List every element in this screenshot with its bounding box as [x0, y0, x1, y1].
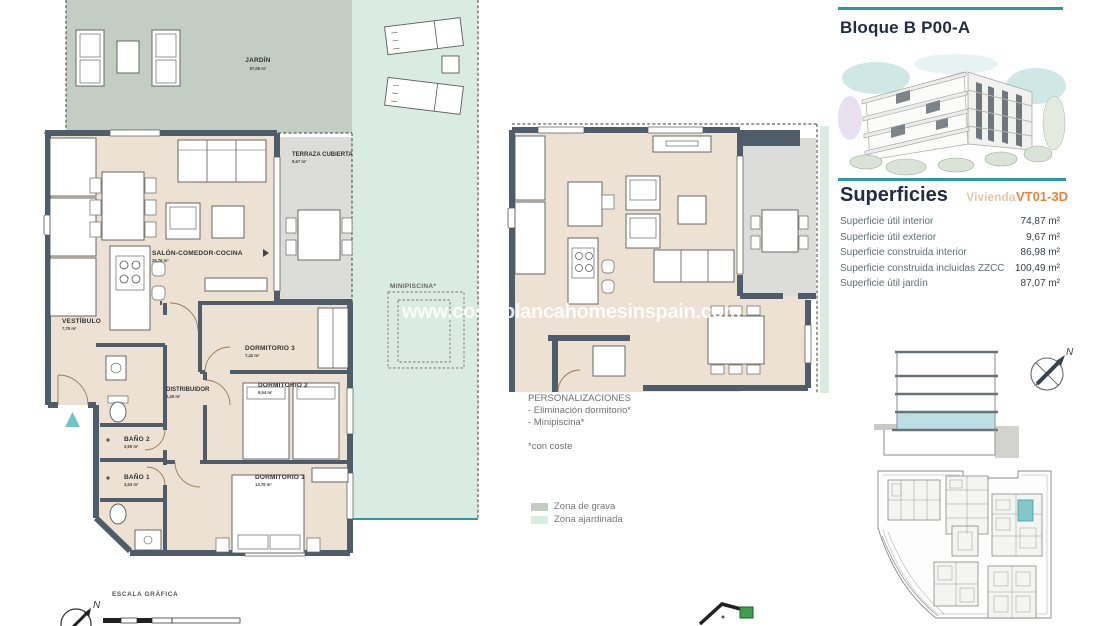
scale-bar — [95, 615, 250, 626]
watermark: www.costablancahomesinspain.com — [402, 301, 741, 324]
row-value: 9,67 m² — [1026, 232, 1060, 243]
row-value: 100,49 m² — [1015, 263, 1060, 274]
room-area-distribuidor: 2,49 m² — [166, 394, 181, 399]
top-rule — [838, 7, 1063, 10]
key-plan-icon — [690, 598, 770, 626]
highlighted-floor — [897, 413, 995, 430]
room-label-minipiscina: MINIPISCINA* — [390, 283, 436, 290]
room-label-vestibulo: VESTÍBULO — [62, 316, 101, 325]
room-label-distribuidor: DISTRIBUIDOR — [166, 387, 210, 393]
unit-code: VT01-3D — [1016, 189, 1068, 204]
kitchen-counters — [50, 138, 96, 316]
room-label-dormitorio3: DORMITORIO 3 — [245, 345, 295, 352]
gravel-swatch-icon — [531, 503, 548, 511]
compass-rose-icon: N — [1018, 342, 1080, 404]
row-value: 87,07 m² — [1021, 278, 1060, 289]
compass-n-label: N — [93, 600, 101, 611]
table-row: Superficie útil jardín 87,07 m² — [840, 276, 1060, 292]
row-label: Superficie útil interior — [840, 216, 933, 227]
table-row: Superficie útil exterior 9,67 m² — [840, 230, 1060, 246]
block-title: Bloque B P00-A — [840, 18, 970, 38]
site-plan — [868, 466, 1073, 626]
room-label-dormitorio2: DORMITORIO 2 — [258, 382, 308, 389]
building-section-diagram — [862, 338, 1027, 466]
room-area-bano1: 3,63 m² — [124, 482, 139, 487]
personalizaciones-item-2: - Minipiscina* — [528, 417, 631, 429]
sofa — [178, 140, 266, 182]
highlighted-unit — [1018, 500, 1033, 521]
zona-ajardinada-area — [352, 0, 478, 518]
room-area-salon: 26,76 m² — [152, 258, 169, 263]
table-row: Superficie construida incluidas ZZCC 100… — [840, 261, 1060, 277]
room-label-jardin: JARDÍN — [245, 55, 271, 64]
garden-swatch-icon — [531, 516, 548, 524]
room-area-dormitorio1: 13,78 m² — [255, 482, 272, 487]
building-render-sketch — [836, 48, 1068, 178]
compass-n-label: N — [1066, 347, 1074, 358]
row-label: Superficie útil jardín — [840, 278, 928, 289]
room-area-bano2: 3,50 m² — [124, 444, 139, 449]
personalizaciones-block: PERSONALIZACIONES - Eliminación dormitor… — [528, 393, 631, 453]
table-row: Superficie útil interior 74,87 m² — [840, 214, 1060, 230]
surfaces-subtitle: Vivienda — [966, 190, 1015, 204]
row-label: Superficie construida incluidas ZZCC — [840, 263, 1005, 274]
room-area-dormitorio2: 9,54 m² — [258, 390, 273, 395]
legend-label-ajardinada: Zona ajardinada — [554, 514, 623, 525]
row-label: Superficie útil exterior — [840, 232, 936, 243]
room-label-terraza: TERRAZA CUBIERTA — [292, 152, 353, 158]
entrance-marker — [65, 412, 80, 427]
row-value: 74,87 m² — [1021, 216, 1060, 227]
surfaces-title: Superficies — [840, 184, 948, 207]
mid-rule — [838, 178, 1066, 181]
room-label-bano2: BAÑO 2 — [124, 434, 150, 443]
room-area-jardin: 87,06 m² — [250, 66, 267, 71]
legend-row-grava: Zona de grava — [531, 501, 623, 512]
row-label: Superficie construida interior — [840, 247, 967, 258]
table-row: Superficie construida interior 86,98 m² — [840, 245, 1060, 261]
personalizaciones-note: *con coste — [528, 441, 631, 453]
room-label-dormitorio1: DORMITORIO 1 — [255, 474, 305, 481]
legend-row-ajardinada: Zona ajardinada — [531, 514, 623, 525]
room-area-dormitorio3: 7,42 m² — [245, 353, 260, 358]
scale-label: ESCALA GRÁFICA — [112, 591, 178, 598]
personalizaciones-item-1: - Eliminación dormitorio* — [528, 405, 631, 417]
room-label-salon: SALÓN-COMEDOR-COCINA — [152, 248, 243, 257]
room-label-bano1: BAÑO 1 — [124, 472, 150, 481]
legend: Zona de grava Zona ajardinada — [531, 501, 623, 527]
personalizaciones-title: PERSONALIZACIONES — [528, 393, 631, 405]
dining-table — [90, 172, 156, 240]
surfaces-table: Superficie útil interior 74,87 m² Superf… — [840, 214, 1060, 292]
legend-label-grava: Zona de grava — [554, 501, 615, 512]
row-value: 86,98 m² — [1021, 247, 1060, 258]
room-area-terraza: 9,67 m² — [292, 159, 307, 164]
zona-grava-area — [66, 0, 352, 133]
floorplan-variant — [498, 110, 843, 410]
surfaces-header: VT01-3D Superficies Vivienda — [840, 184, 1068, 207]
bedroom3-closet — [318, 308, 348, 368]
room-area-vestibulo: 7,75 m² — [62, 326, 77, 331]
page: JARDÍN 87,06 m² TERRAZA CUBIERTA 9,67 m²… — [0, 0, 1110, 626]
